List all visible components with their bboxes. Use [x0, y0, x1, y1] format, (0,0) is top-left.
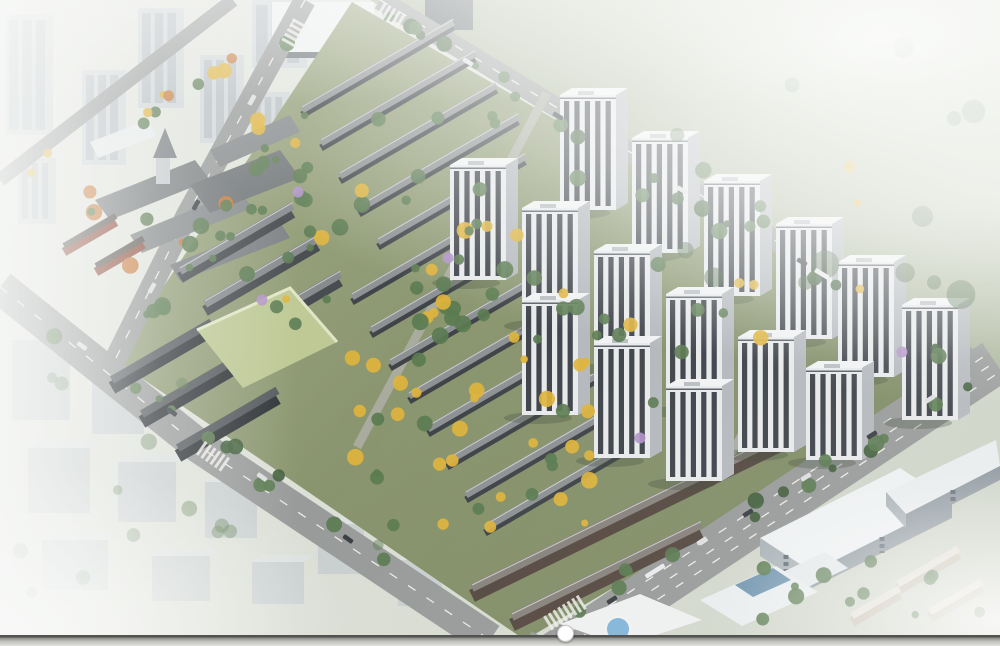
carousel-track[interactable] — [0, 635, 1000, 646]
aerial-rendering-scene — [0, 0, 1000, 646]
rendering-viewer — [0, 0, 1000, 646]
carousel-slider-handle[interactable] — [557, 625, 574, 642]
